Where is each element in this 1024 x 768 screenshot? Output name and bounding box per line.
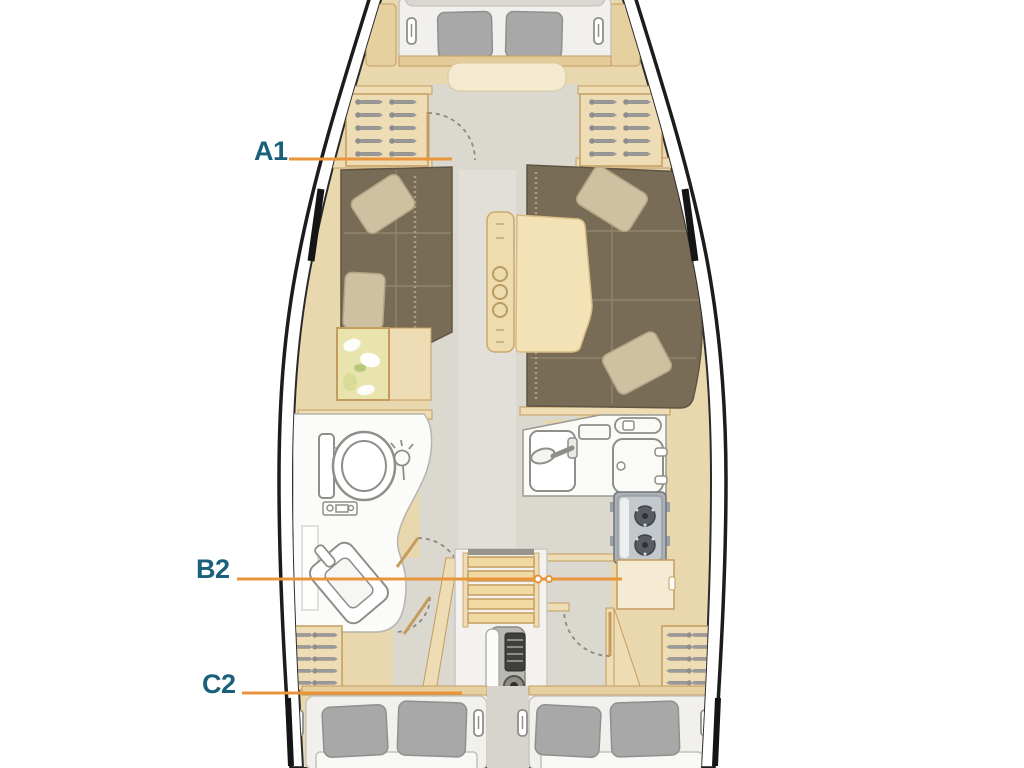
cutting-board	[579, 425, 610, 439]
bed-foot-cushion	[448, 63, 566, 91]
label-a1: A1	[254, 138, 288, 165]
stove-icon	[610, 492, 670, 564]
hanging-locker-forward-port	[346, 94, 428, 166]
galley-top-locker	[615, 418, 661, 433]
companionway-steps-icon	[468, 557, 534, 623]
galley-lower-cabinet	[617, 560, 675, 609]
aft-berth-port	[294, 686, 487, 768]
reading-light-icon	[594, 18, 603, 44]
leader-dot	[535, 576, 542, 583]
hanging-locker-forward-starboard	[580, 94, 662, 166]
chart-table	[337, 328, 431, 400]
table-leaf	[516, 215, 592, 352]
reading-light-icon	[474, 710, 483, 736]
label-c2: C2	[202, 671, 236, 698]
galley-sink-icon	[530, 431, 577, 491]
toilet-control-panel	[323, 502, 357, 515]
aft-berth-starboard	[518, 686, 712, 768]
reading-light-icon	[407, 18, 416, 44]
fridge-icon	[613, 439, 667, 493]
yacht-layout-diagram: A1 B2 C2	[0, 0, 1024, 768]
label-b2: B2	[196, 556, 230, 583]
companionway	[455, 549, 547, 705]
layout-svg	[0, 0, 1024, 768]
forward-mattress	[399, 0, 611, 62]
salon-table	[487, 212, 592, 352]
leader-dot	[546, 576, 552, 582]
toilet-icon	[319, 432, 395, 500]
forward-duvet	[405, 0, 605, 6]
reading-light-icon	[518, 710, 527, 736]
